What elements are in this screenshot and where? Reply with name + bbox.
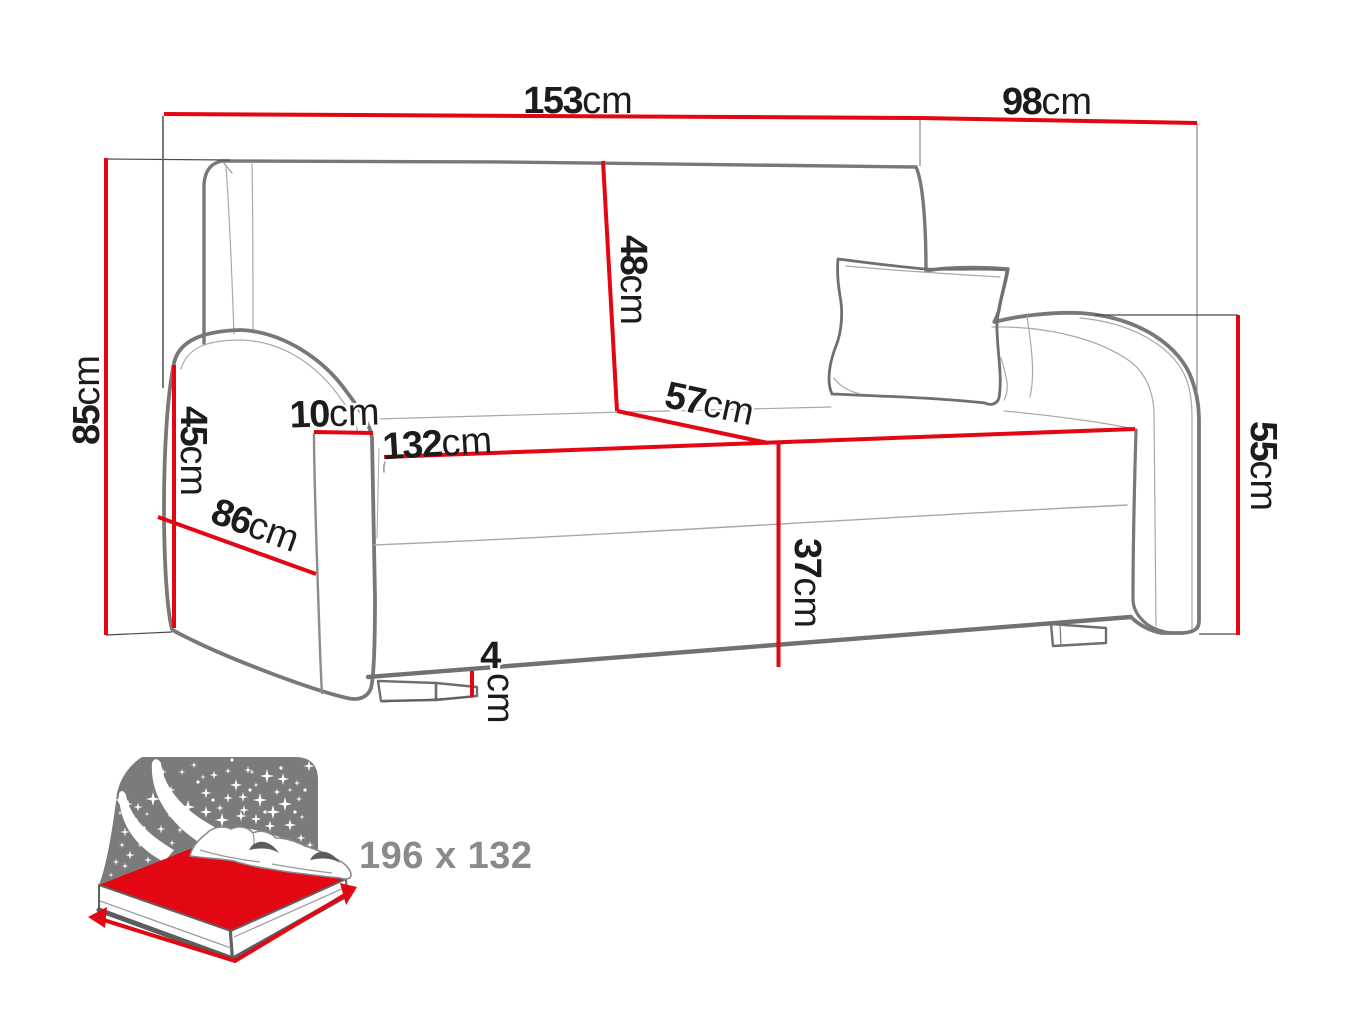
svg-text:4: 4: [480, 635, 501, 677]
svg-text:37cm: 37cm: [786, 538, 828, 628]
svg-text:153cm: 153cm: [523, 80, 633, 122]
svg-text:132cm: 132cm: [381, 420, 493, 469]
svg-text:10cm: 10cm: [289, 391, 380, 436]
svg-text:48cm: 48cm: [612, 235, 654, 325]
svg-text:85cm: 85cm: [66, 355, 108, 445]
svg-text:98cm: 98cm: [1002, 81, 1092, 123]
svg-text:55cm: 55cm: [1242, 421, 1284, 511]
svg-text:45cm: 45cm: [172, 406, 214, 496]
svg-text:196 x 132: 196 x 132: [359, 835, 533, 877]
svg-text:cm: cm: [479, 673, 521, 724]
